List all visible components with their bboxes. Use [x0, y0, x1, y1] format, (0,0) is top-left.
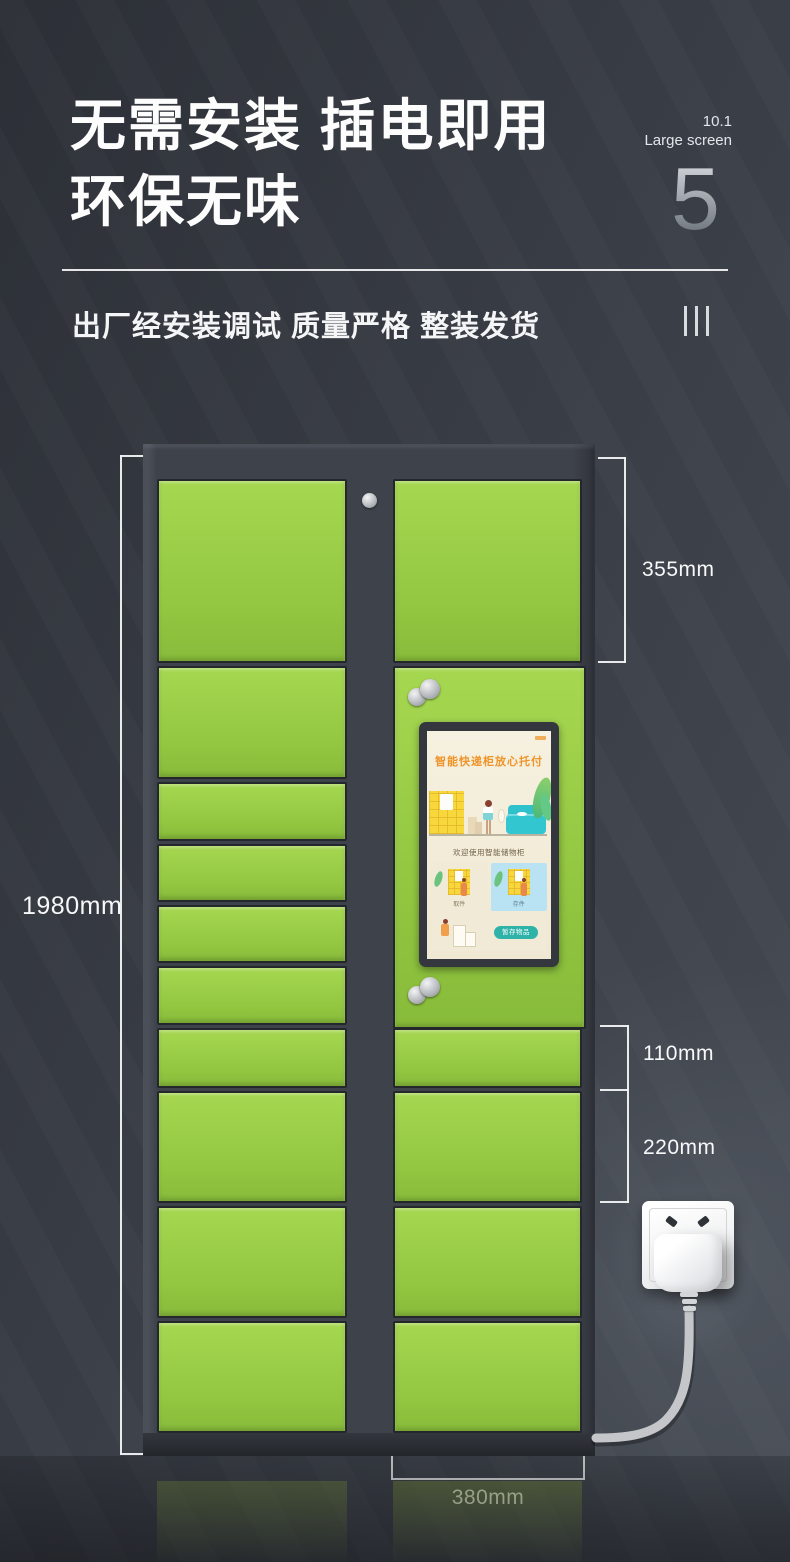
plug-strain-relief [680, 1292, 698, 1297]
plug-strain-relief [683, 1306, 696, 1311]
floor-reflection [157, 1481, 347, 1562]
power-cable [0, 0, 790, 1562]
plug-strain-relief [682, 1299, 697, 1304]
floor-reflection [393, 1481, 582, 1562]
power-plug [654, 1234, 722, 1292]
page-background: { "header": { "title_line1": "无需安装 插电即用"… [0, 0, 790, 1562]
